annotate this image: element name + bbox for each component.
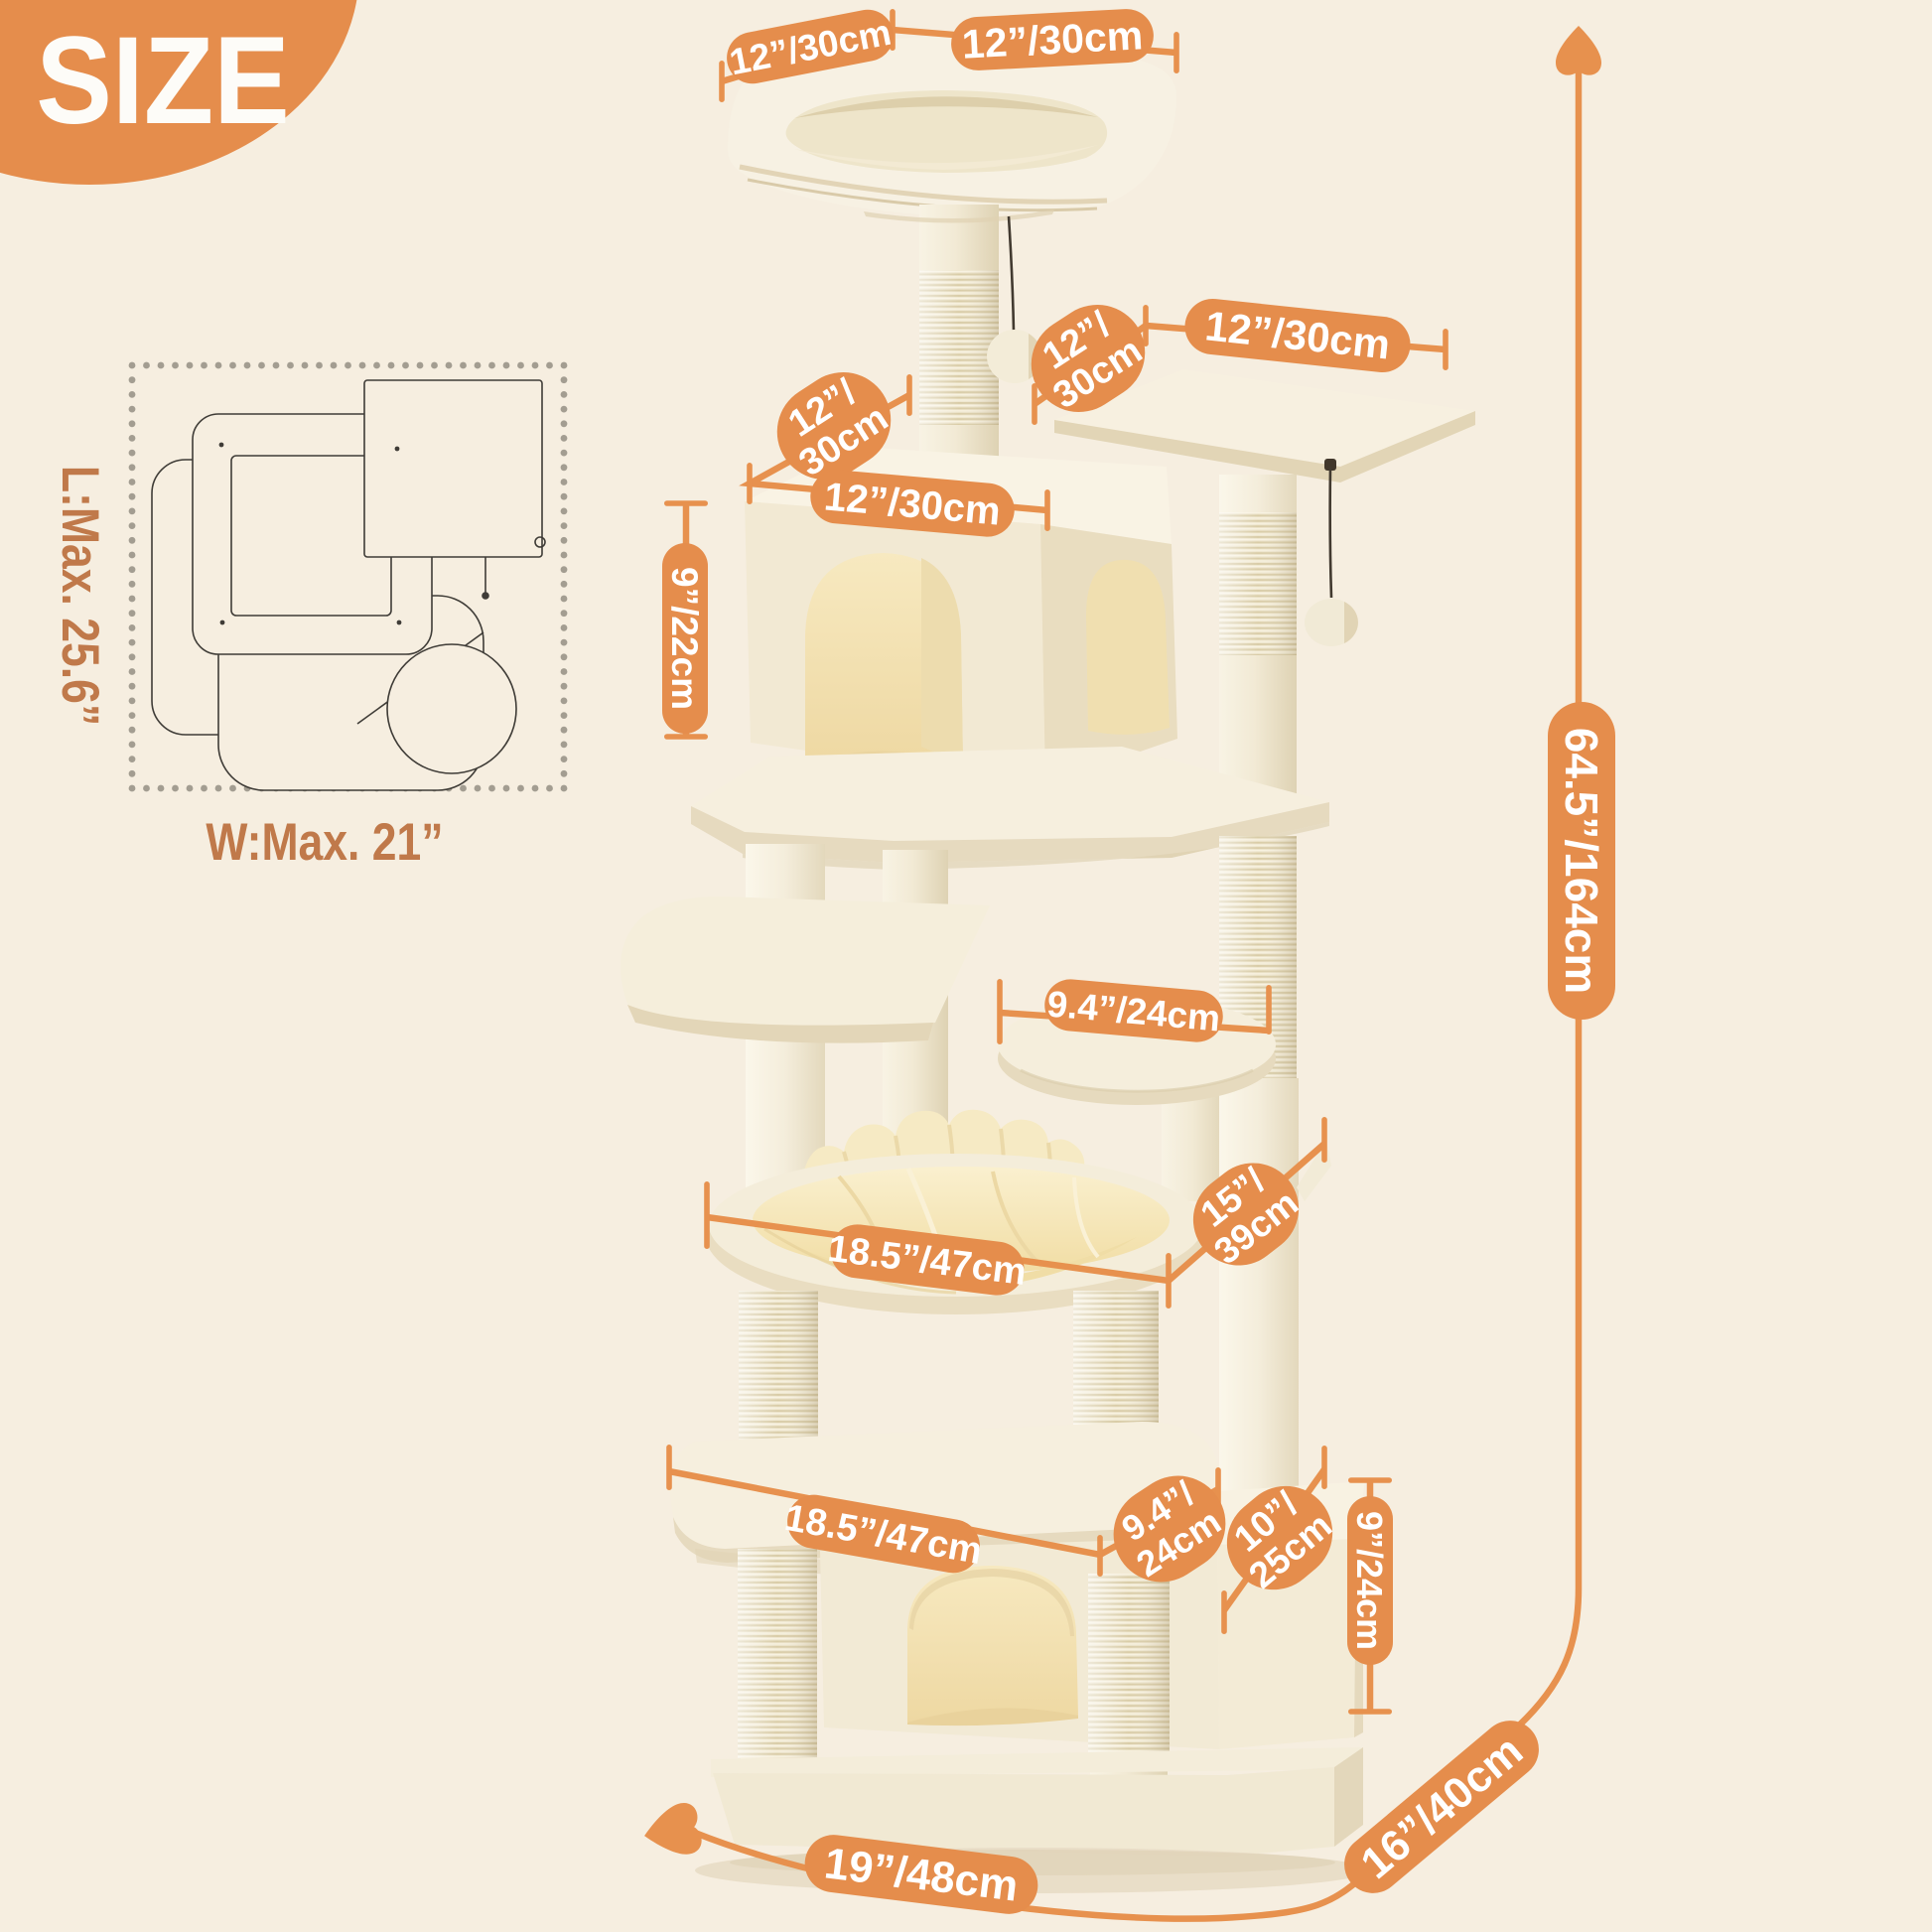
- svg-text:SIZE: SIZE: [36, 12, 290, 150]
- svg-text:L:Max. 25.6”: L:Max. 25.6”: [51, 466, 108, 726]
- svg-text:9”/22cm: 9”/22cm: [664, 567, 705, 710]
- svg-text:9”/24cm: 9”/24cm: [1349, 1511, 1390, 1650]
- svg-text:64.5”/164cm: 64.5”/164cm: [1556, 728, 1607, 995]
- svg-text:12”/30cm: 12”/30cm: [961, 12, 1145, 67]
- svg-text:W:Max. 21”: W:Max. 21”: [206, 813, 443, 871]
